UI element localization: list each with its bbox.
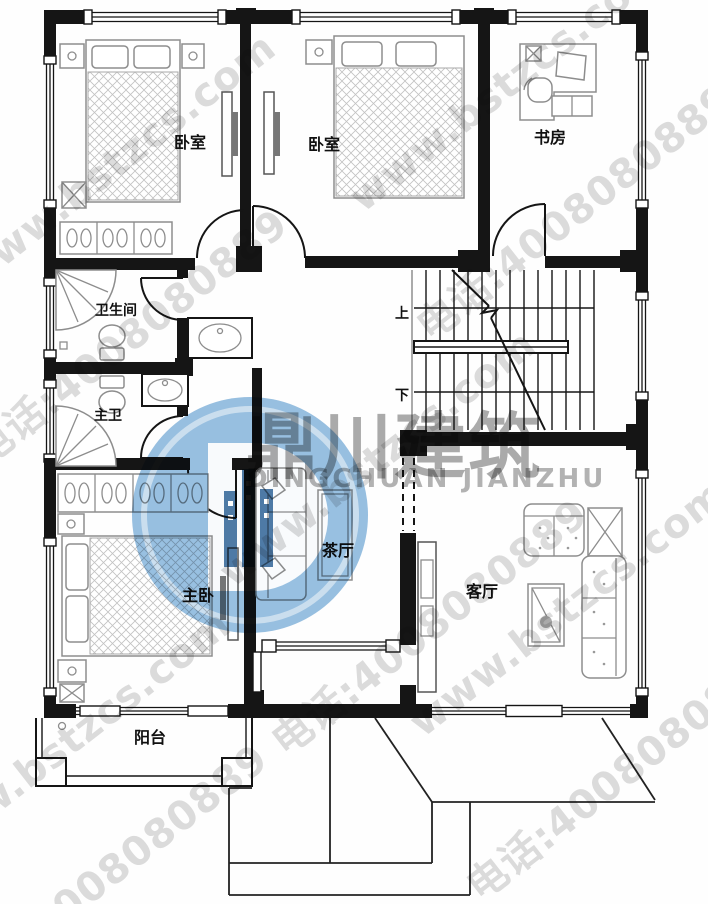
computer-monitor [556,52,586,80]
wash-basin-niche [188,318,252,358]
master-bath-fixtures [56,374,188,466]
nightstand [60,44,84,68]
window-bottom-living [432,704,630,718]
room-label-master-bedroom: 主卧 [182,586,214,605]
stair-down-label: 下 [395,388,409,404]
bed-quilt [88,72,178,200]
wardrobe [60,222,172,254]
room-label-tea-hall: 茶厅 [321,541,354,560]
tv-cabinet [418,542,436,692]
coffee-table [318,490,352,580]
nightstand [182,44,204,68]
living-room-furniture [418,504,626,692]
window-top-study [508,10,620,24]
study-furniture [520,44,596,120]
nightstand [58,514,84,534]
room-label-living-room: 客厅 [466,582,498,601]
window-right-stairs [636,292,648,400]
desk-chair [528,78,552,102]
stair-up-label: 上 [395,306,409,322]
tv-cabinet [222,92,232,176]
bathroom-fixtures [56,270,252,360]
balcony-post [222,758,252,786]
tv-screen [220,576,226,620]
tv-cabinet [264,92,274,174]
room-label-bathroom: 卫生间 [95,302,137,319]
coffee-table [528,584,564,646]
floor-drain [60,342,67,349]
window-top-bedroom-left [84,10,226,24]
window-left-master-bath [44,380,56,462]
long-sofa [582,556,626,678]
room-label-study: 书房 [534,128,566,147]
wardrobe [58,474,208,512]
floor-plan-page: 上 下 [0,0,708,904]
door-master-bath [141,416,183,458]
room-label-balcony: 阳台 [134,728,166,747]
nightstand [58,660,86,682]
door-bathroom [141,278,183,320]
staircase: 上 下 [395,270,594,430]
window-right-living [636,470,648,696]
window-right-study [636,52,648,208]
wash-basin-niche [142,374,188,406]
sliding-door-balcony [76,704,228,718]
window-left-bathroom [44,278,56,358]
side-table [588,508,622,556]
room-label-master-bath: 主卫 [94,407,122,424]
tv-screen [274,112,280,156]
teapot [540,616,552,628]
balcony-post [36,758,66,786]
loveseat [524,504,584,556]
bed-quilt [336,68,462,196]
window-left-bedroom [44,56,56,208]
door-study [493,204,545,256]
roof-outline [229,718,655,895]
tv-cabinet [228,548,238,640]
tea-hall-furniture [256,468,352,600]
window-top-bedroom-mid [292,10,460,24]
window-left-master-bedroom [44,538,56,696]
bedroom-left-furniture [60,40,238,254]
tv-screen [232,112,238,156]
floor-plan-drawing: 上 下 [0,0,708,904]
toilet [99,325,125,347]
room-label-bedroom-mid: 卧室 [308,135,340,154]
floor-drain [59,723,66,730]
nightstand [306,40,332,64]
room-label-bedroom-left: 卧室 [174,133,206,152]
bedroom-mid-furniture [264,36,464,198]
